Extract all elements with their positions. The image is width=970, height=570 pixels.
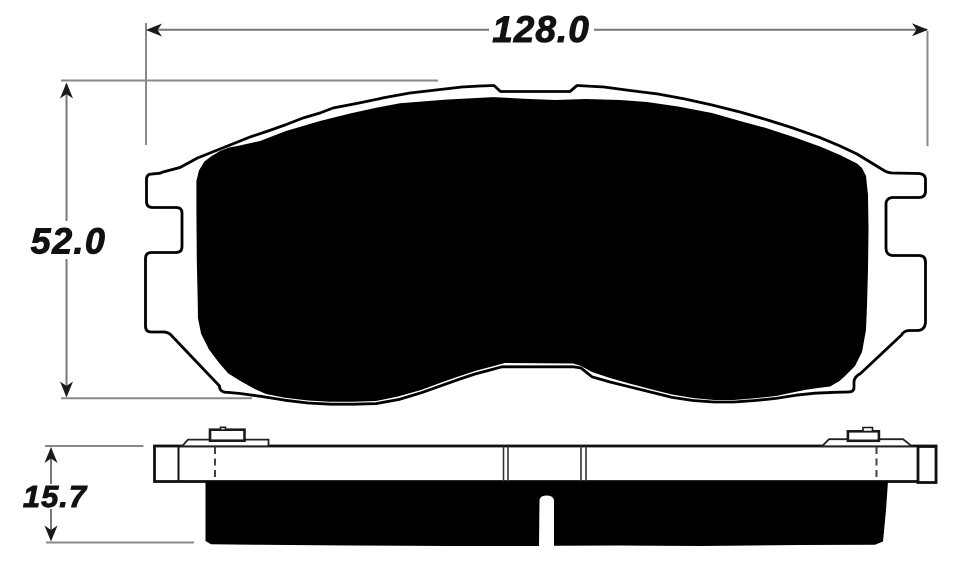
svg-text:52.0: 52.0 (31, 221, 107, 262)
svg-text:128.0: 128.0 (492, 9, 590, 50)
svg-text:15.7: 15.7 (23, 479, 88, 514)
